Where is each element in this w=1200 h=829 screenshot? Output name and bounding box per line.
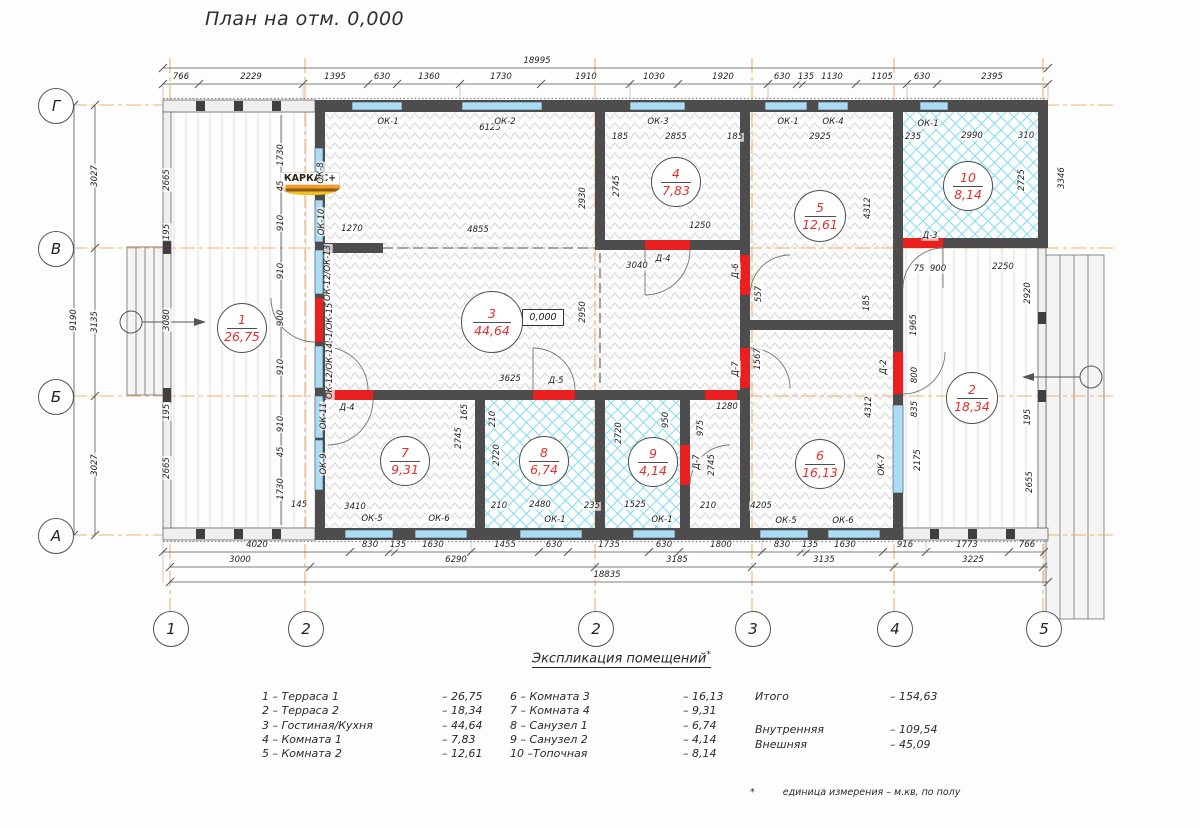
stairs-left bbox=[127, 247, 163, 395]
floor-plan-svg bbox=[0, 0, 1200, 829]
stairs-right bbox=[1046, 255, 1104, 619]
blueprint-canvas: План на отм. 0,000 КАРКАС+ 0,000 Эксплик… bbox=[0, 0, 1200, 829]
